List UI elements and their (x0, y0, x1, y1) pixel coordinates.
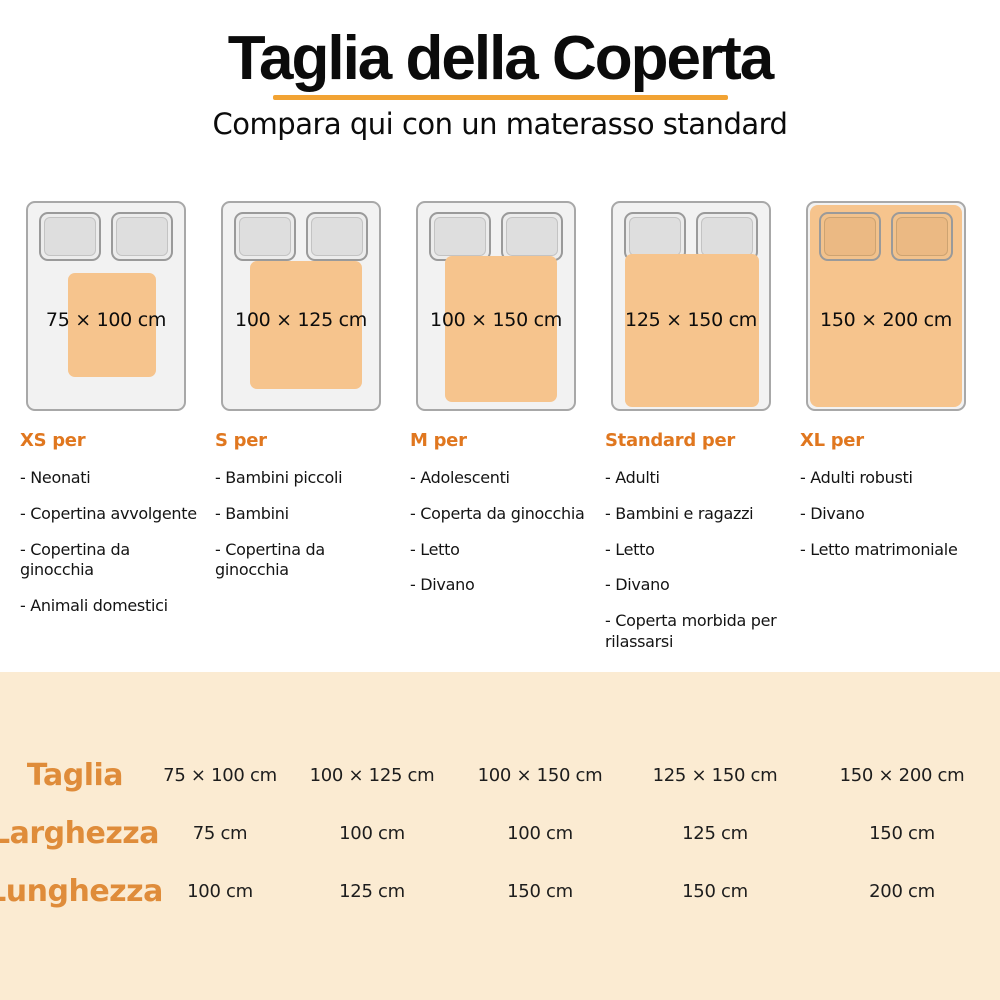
blanket-size-label: 100 × 150 cm (412, 309, 580, 331)
pillow-inner (896, 217, 948, 256)
card-heading: Standard per (605, 430, 784, 451)
table-cell-taglia: 100 × 125 cm (290, 746, 454, 804)
pillows (819, 212, 953, 261)
table-cell-larghezza: 150 cm (804, 804, 1000, 862)
use-list: M per - Adolescenti - Coperta da ginocch… (400, 430, 595, 596)
card-heading: XL per (800, 430, 979, 451)
table-cell-lunghezza: 125 cm (290, 862, 454, 920)
card-use-item: - Letto matrimoniale (800, 540, 979, 561)
card-use-item: - Copertina avvolgente (20, 504, 199, 525)
pillow-icon (891, 212, 953, 261)
title-underline (273, 95, 728, 100)
use-list: Standard per - Adulti - Bambini e ragazz… (595, 430, 790, 653)
size-card-standard: 125 × 150 cm Standard per - Adulti - Bam… (595, 201, 790, 668)
pillows (39, 212, 173, 261)
card-use-item: - Divano (605, 575, 784, 596)
pillow-inner (701, 217, 753, 256)
pillow-icon (39, 212, 101, 261)
use-list: XS per - Neonati - Copertina avvolgente … (10, 430, 205, 617)
card-use-item: - Adulti robusti (800, 468, 979, 489)
size-table: Taglia 75 × 100 cm 100 × 125 cm 100 × 15… (0, 672, 1000, 920)
page-title: Taglia della Coperta (0, 26, 1000, 91)
pillow-icon (306, 212, 368, 261)
table-cell-taglia: 125 × 150 cm (626, 746, 804, 804)
table-cell-larghezza: 75 cm (150, 804, 290, 862)
table-cell-taglia: 75 × 100 cm (150, 746, 290, 804)
size-card-s: 100 × 125 cm S per - Bambini piccoli - B… (205, 201, 400, 668)
card-use-item: - Bambini (215, 504, 394, 525)
blanket-size-label: 150 × 200 cm (802, 309, 970, 331)
card-use-item: - Adulti (605, 468, 784, 489)
card-heading: S per (215, 430, 394, 451)
pillow-inner (311, 217, 363, 256)
card-use-item: - Coperta da ginocchia (410, 504, 589, 525)
table-cell-lunghezza: 200 cm (804, 862, 1000, 920)
pillow-inner (824, 217, 876, 256)
card-use-item: - Adolescenti (410, 468, 589, 489)
pillow-inner (506, 217, 558, 256)
size-card-m: 100 × 150 cm M per - Adolescenti - Coper… (400, 201, 595, 668)
card-use-item: - Animali domestici (20, 596, 199, 617)
pillow-icon (501, 212, 563, 261)
card-use-item: - Bambini e ragazzi (605, 504, 784, 525)
size-card-xl: 150 × 200 cm XL per - Adulti robusti - D… (790, 201, 985, 668)
pillows (234, 212, 368, 261)
bed-diagram: 100 × 150 cm (416, 201, 576, 411)
table-row-label: Larghezza (0, 804, 150, 862)
card-use-item: - Coperta morbida per rilassarsi (605, 611, 784, 653)
size-cards-row: 75 × 100 cm XS per - Neonati - Copertina… (0, 201, 1000, 606)
pillow-inner (116, 217, 168, 256)
pillow-inner (239, 217, 291, 256)
bed-diagram: 125 × 150 cm (611, 201, 771, 411)
use-list: S per - Bambini piccoli - Bambini - Cope… (205, 430, 400, 581)
pillows (429, 212, 563, 261)
card-heading: XS per (20, 430, 199, 451)
card-use-item: - Divano (410, 575, 589, 596)
table-cell-taglia: 150 × 200 cm (804, 746, 1000, 804)
size-table-band: Taglia 75 × 100 cm 100 × 125 cm 100 × 15… (0, 672, 1000, 1000)
card-use-item: - Neonati (20, 468, 199, 489)
table-cell-larghezza: 100 cm (290, 804, 454, 862)
size-card-xs: 75 × 100 cm XS per - Neonati - Copertina… (10, 201, 205, 668)
card-use-item: - Copertina da ginocchia (215, 540, 394, 582)
table-row-label: Taglia (0, 746, 150, 804)
blanket-size-label: 75 × 100 cm (22, 309, 190, 331)
card-use-item: - Copertina da ginocchia (20, 540, 199, 582)
pillow-inner (434, 217, 486, 256)
card-heading: M per (410, 430, 589, 451)
bed-diagram: 75 × 100 cm (26, 201, 186, 411)
table-cell-lunghezza: 100 cm (150, 862, 290, 920)
table-cell-larghezza: 100 cm (454, 804, 626, 862)
table-row-label: Lunghezza (0, 862, 150, 920)
blanket-size-label: 100 × 125 cm (217, 309, 385, 331)
header: Taglia della Coperta Compara qui con un … (0, 0, 1000, 141)
bed-diagram: 100 × 125 cm (221, 201, 381, 411)
pillow-inner (44, 217, 96, 256)
pillow-icon (234, 212, 296, 261)
pillow-icon (429, 212, 491, 261)
table-cell-taglia: 100 × 150 cm (454, 746, 626, 804)
card-use-item: - Bambini piccoli (215, 468, 394, 489)
bed-diagram: 150 × 200 cm (806, 201, 966, 411)
table-cell-larghezza: 125 cm (626, 804, 804, 862)
card-use-item: - Letto (410, 540, 589, 561)
card-use-item: - Divano (800, 504, 979, 525)
pillow-icon (819, 212, 881, 261)
table-cell-lunghezza: 150 cm (626, 862, 804, 920)
pillow-inner (629, 217, 681, 256)
table-cell-lunghezza: 150 cm (454, 862, 626, 920)
blanket-size-infographic: Taglia della Coperta Compara qui con un … (0, 0, 1000, 1000)
blanket-size-label: 125 × 150 cm (607, 309, 775, 331)
card-use-item: - Letto (605, 540, 784, 561)
use-list: XL per - Adulti robusti - Divano - Letto… (790, 430, 985, 560)
page-subtitle: Compara qui con un materasso standard (0, 107, 1000, 141)
pillow-icon (111, 212, 173, 261)
